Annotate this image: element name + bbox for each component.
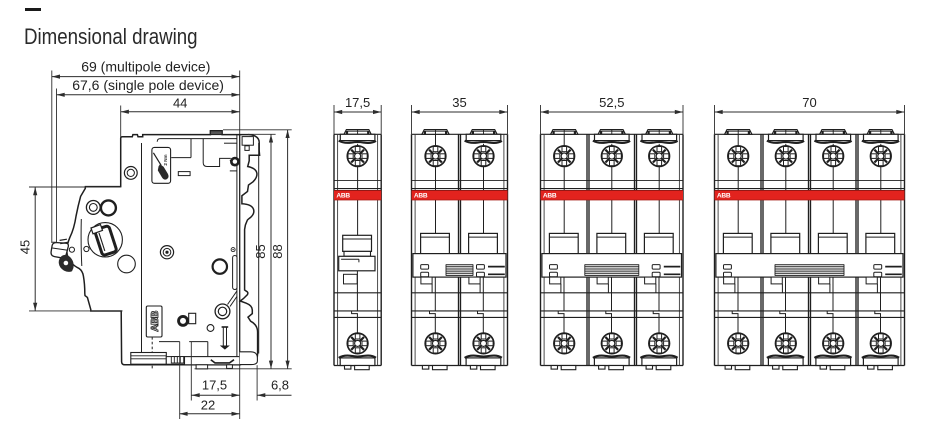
svg-text:22: 22 — [201, 397, 215, 412]
svg-text:ABB: ABB — [336, 193, 350, 200]
svg-text:52,5: 52,5 — [599, 95, 624, 110]
svg-text:6,8: 6,8 — [271, 378, 289, 393]
svg-text:35: 35 — [452, 95, 466, 110]
svg-text:85: 85 — [253, 244, 268, 258]
svg-text:ABB: ABB — [414, 193, 428, 200]
svg-text:ABB: ABB — [149, 310, 161, 332]
svg-text:ABB: ABB — [717, 193, 731, 200]
svg-text:44: 44 — [173, 95, 187, 110]
svg-text:67,6 (single pole device): 67,6 (single pole device) — [72, 77, 224, 93]
svg-text:69 (multipole device): 69 (multipole device) — [81, 58, 210, 74]
svg-text:ABB: ABB — [543, 193, 557, 200]
svg-text:88: 88 — [270, 244, 285, 258]
svg-text:17,5: 17,5 — [345, 95, 370, 110]
svg-text:70: 70 — [802, 95, 816, 110]
svg-text:45: 45 — [18, 240, 33, 254]
svg-text:17,5: 17,5 — [202, 378, 227, 393]
svg-text:2 Nm: 2 Nm — [163, 154, 168, 165]
